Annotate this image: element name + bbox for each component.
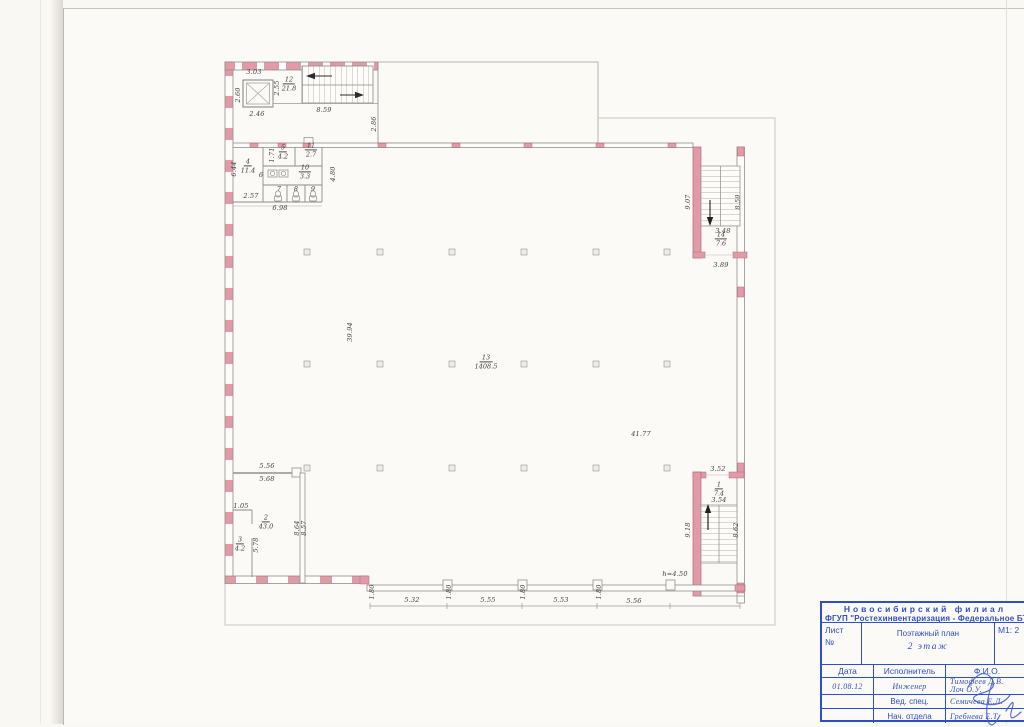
bottom-left-wall [225, 576, 368, 584]
column-square [304, 361, 310, 367]
date-value: 01.08.12 [822, 678, 874, 694]
plan-type-label: Поэтажный план [862, 629, 994, 638]
role-engineer: Инженер [874, 678, 946, 694]
column-square [449, 465, 455, 471]
column-square [593, 249, 599, 255]
lift-shaft [243, 80, 273, 107]
signatures-table: Дата Исполнитель Ф.И.О. 01.08.12 Инженер… [822, 665, 1024, 723]
column-square [664, 465, 670, 471]
toilet-fixtures [275, 191, 317, 201]
role-lead-spec: Вед. спец. [874, 695, 946, 708]
column-square [377, 465, 383, 471]
sheet-label: Лист [825, 625, 861, 637]
column-square [521, 249, 527, 255]
column-grid [304, 249, 670, 471]
left-wall [225, 62, 233, 583]
table-row-engineer: 01.08.12 Инженер Тимофеев Д.В. Лоч О.У. [822, 678, 1024, 695]
column-square [664, 249, 670, 255]
column-square [664, 361, 670, 367]
staircase-top-left [273, 66, 378, 143]
role-dept-head: Нач. отдела [874, 709, 946, 723]
title-block: Новосибирский филиал ФГУП "Ростехинвента… [820, 601, 1024, 722]
org-branch-name: Новосибирский филиал [822, 604, 1024, 614]
sheet-number-label: № [825, 637, 861, 649]
sheet-cell: Лист № [822, 623, 862, 664]
washbasin-fixtures [268, 170, 288, 177]
scanned-sheet: { "document": { "type": "floor-plan-shee… [0, 0, 1024, 724]
column-square [377, 361, 383, 367]
engineer-name-2: Лоч О.У. [950, 686, 1024, 694]
col-header-role: Исполнитель [874, 665, 946, 677]
col-header-date: Дата [822, 665, 874, 677]
column-square [521, 465, 527, 471]
dept-head-name: Гребнева Е.Т. [946, 712, 1024, 721]
scale-label: М1: 2 [994, 623, 1024, 664]
column-square [593, 465, 599, 471]
col-header-fio: Ф.И.О. [946, 666, 1024, 676]
title-block-header: Новосибирский филиал ФГУП "Ростехинвента… [822, 603, 1024, 623]
column-square [449, 249, 455, 255]
org-full-name: ФГУП "Ростехинвентаризация - Федеральное… [822, 614, 1024, 623]
lead-spec-name: Семичева Е.Л. [946, 697, 1024, 706]
column-square [304, 465, 310, 471]
column-square [449, 361, 455, 367]
column-square [304, 249, 310, 255]
table-row-lead-spec: Вед. спец. Семичева Е.Л. [822, 695, 1024, 709]
column-square [377, 249, 383, 255]
hall-bottom-wall [360, 576, 745, 609]
column-square [593, 361, 599, 367]
floor-label: 2 этаж [862, 642, 994, 652]
staircase-bottom-right [693, 472, 744, 596]
table-row-dept-head: Нач. отдела Гребнева Е.Т. [822, 709, 1024, 723]
column-square [521, 361, 527, 367]
room2-walls [233, 468, 305, 583]
